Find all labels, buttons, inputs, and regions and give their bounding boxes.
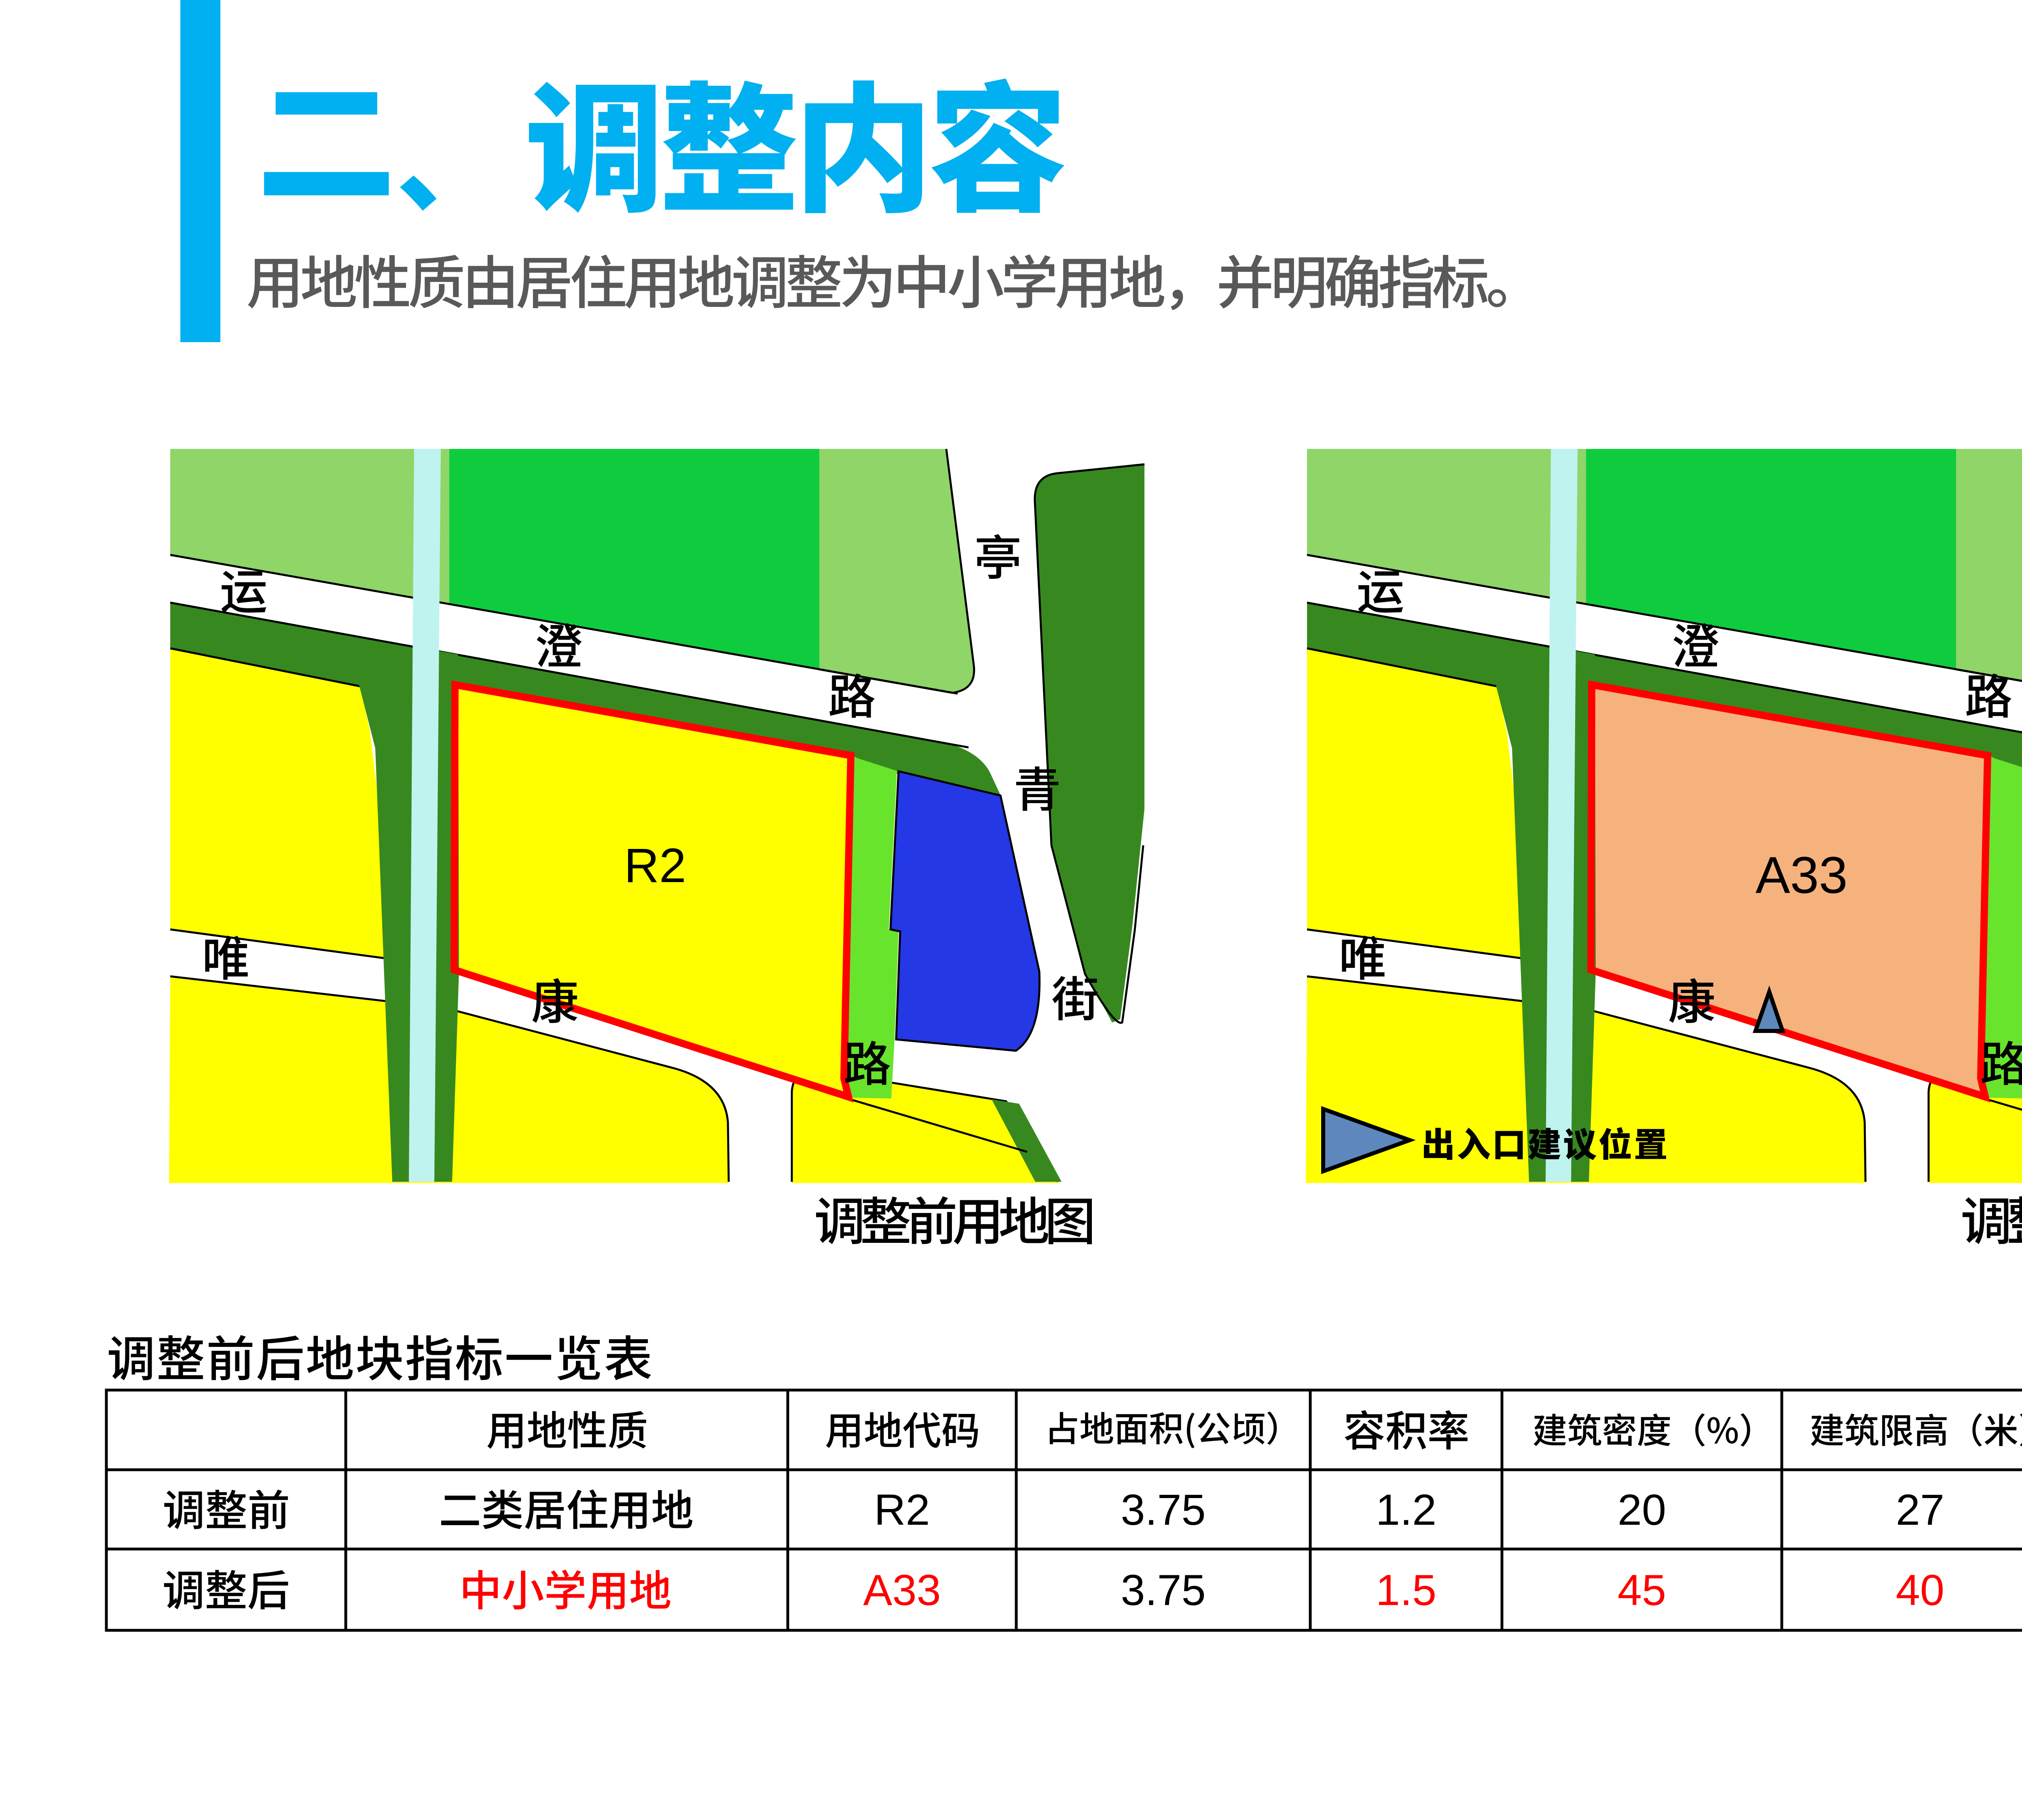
svg-text:45: 45: [1618, 1566, 1666, 1615]
svg-text:3.75: 3.75: [1121, 1485, 1206, 1534]
svg-text:40: 40: [1896, 1566, 1944, 1615]
svg-text:A33: A33: [863, 1566, 941, 1615]
svg-text:27: 27: [1896, 1485, 1944, 1534]
svg-text:R2: R2: [874, 1485, 930, 1534]
svg-text:20: 20: [1618, 1485, 1666, 1534]
svg-text:A33: A33: [1756, 847, 1848, 904]
svg-text:1.2: 1.2: [1376, 1485, 1436, 1534]
svg-text:1.5: 1.5: [1376, 1566, 1436, 1615]
svg-text:R2: R2: [624, 838, 686, 893]
svg-text:3.75: 3.75: [1121, 1566, 1206, 1615]
